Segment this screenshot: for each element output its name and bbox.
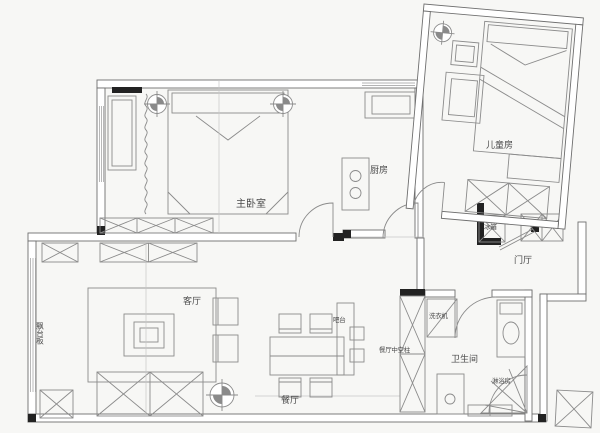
washbasin bbox=[437, 374, 464, 414]
label-washing-machine: 洗衣机 bbox=[429, 313, 448, 320]
shower bbox=[481, 366, 527, 413]
floor-plan: 主卧室 儿童房 厨房 门厅 客厅 餐厅 卫生间 飘台板 吧台 餐厅中空柱 冰箱 … bbox=[0, 0, 600, 433]
label-bathroom: 卫生间 bbox=[451, 356, 478, 365]
kids-wardrobe bbox=[465, 179, 549, 218]
label-foyer: 门厅 bbox=[514, 257, 532, 266]
coffee-table bbox=[124, 314, 174, 356]
label-dining-column: 餐厅中空柱 bbox=[379, 347, 410, 354]
bedroom-cabinet bbox=[100, 218, 213, 233]
toilet bbox=[497, 300, 525, 357]
bedroom-door bbox=[299, 203, 333, 237]
dining-room bbox=[270, 296, 425, 412]
label-kids-room: 儿童房 bbox=[486, 142, 513, 151]
ceiling-light-icon bbox=[206, 379, 238, 411]
top-cabinets bbox=[42, 243, 197, 262]
bar-counter bbox=[337, 303, 364, 375]
living-room bbox=[40, 241, 400, 418]
nightstand bbox=[451, 41, 479, 67]
curtain bbox=[145, 94, 147, 214]
floor-plan-drawing bbox=[0, 0, 600, 433]
outdoor-unit bbox=[555, 390, 593, 428]
dining-partition-column bbox=[400, 296, 425, 412]
ceiling-light-icon bbox=[430, 20, 456, 46]
label-dining-room: 餐厅 bbox=[281, 397, 299, 406]
label-bar-counter: 吧台 bbox=[333, 317, 345, 324]
dining-chairs bbox=[279, 314, 332, 397]
single-bed bbox=[473, 21, 572, 158]
ceiling-light-icon bbox=[144, 91, 170, 117]
label-living-room: 客厅 bbox=[183, 298, 201, 307]
label-kitchen: 厨房 bbox=[370, 167, 388, 176]
master-bedroom bbox=[100, 80, 333, 237]
sofa-cabinet bbox=[97, 372, 203, 416]
kids-room bbox=[406, 4, 584, 229]
double-bed bbox=[168, 90, 288, 214]
bed-bench bbox=[507, 154, 561, 182]
label-master-bedroom: 主卧室 bbox=[236, 200, 266, 210]
bathroom-door bbox=[455, 297, 496, 338]
label-fridge: 冰箱 bbox=[484, 224, 496, 231]
entry-door-leaf bbox=[499, 229, 534, 250]
label-shower-room: 淋浴房 bbox=[492, 378, 511, 385]
armchairs bbox=[213, 298, 238, 362]
stove bbox=[342, 158, 369, 210]
label-bay-window-board: 飘台板 bbox=[36, 322, 44, 345]
kitchen bbox=[342, 92, 418, 238]
